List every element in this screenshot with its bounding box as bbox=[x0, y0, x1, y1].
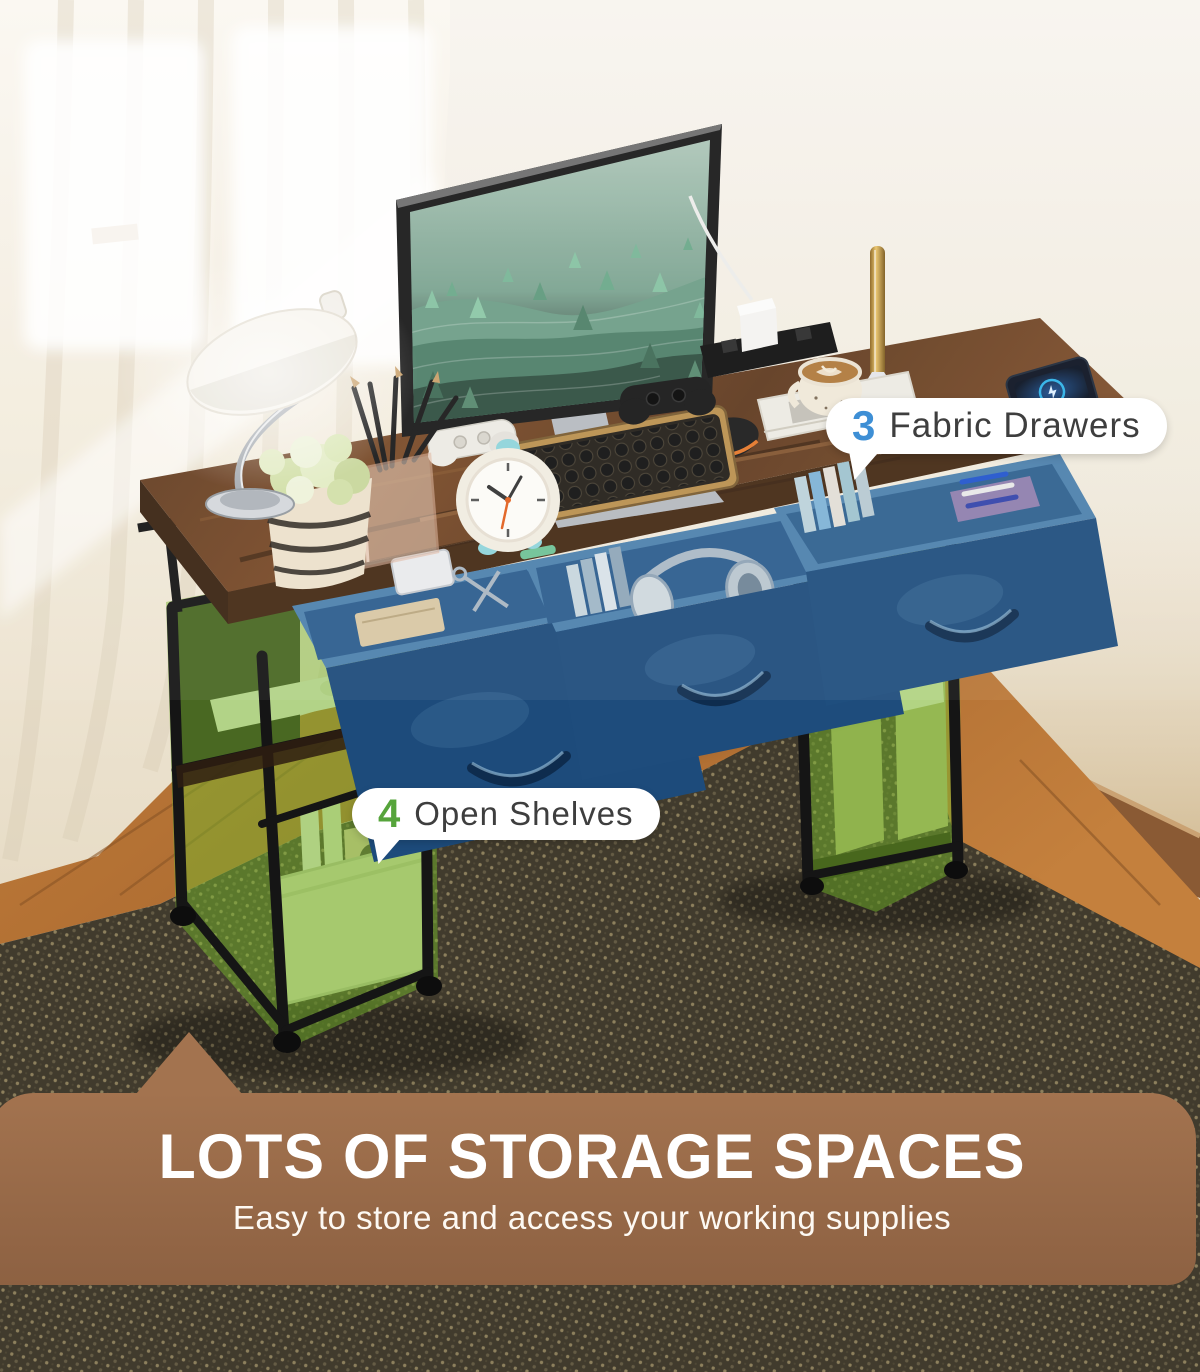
callout-drawers-count: 3 bbox=[852, 402, 875, 450]
bottom-banner: LOTS OF STORAGE SPACES Easy to store and… bbox=[0, 1093, 1196, 1285]
callout-drawers-label: Fabric Drawers bbox=[889, 406, 1140, 446]
callout-shelves: 4 Open Shelves bbox=[352, 788, 660, 840]
callout-shelves-label: Open Shelves bbox=[414, 795, 633, 833]
callout-shelves-count: 4 bbox=[378, 792, 400, 837]
banner-subtitle: Easy to store and access your working su… bbox=[0, 1199, 1196, 1237]
banner-title: LOTS OF STORAGE SPACES bbox=[0, 1120, 1196, 1193]
product-photo: 3 Fabric Drawers 4 Open Shelves LOTS OF … bbox=[0, 0, 1200, 1372]
callout-drawers: 3 Fabric Drawers bbox=[826, 398, 1167, 454]
banner-arrow bbox=[136, 1032, 242, 1094]
